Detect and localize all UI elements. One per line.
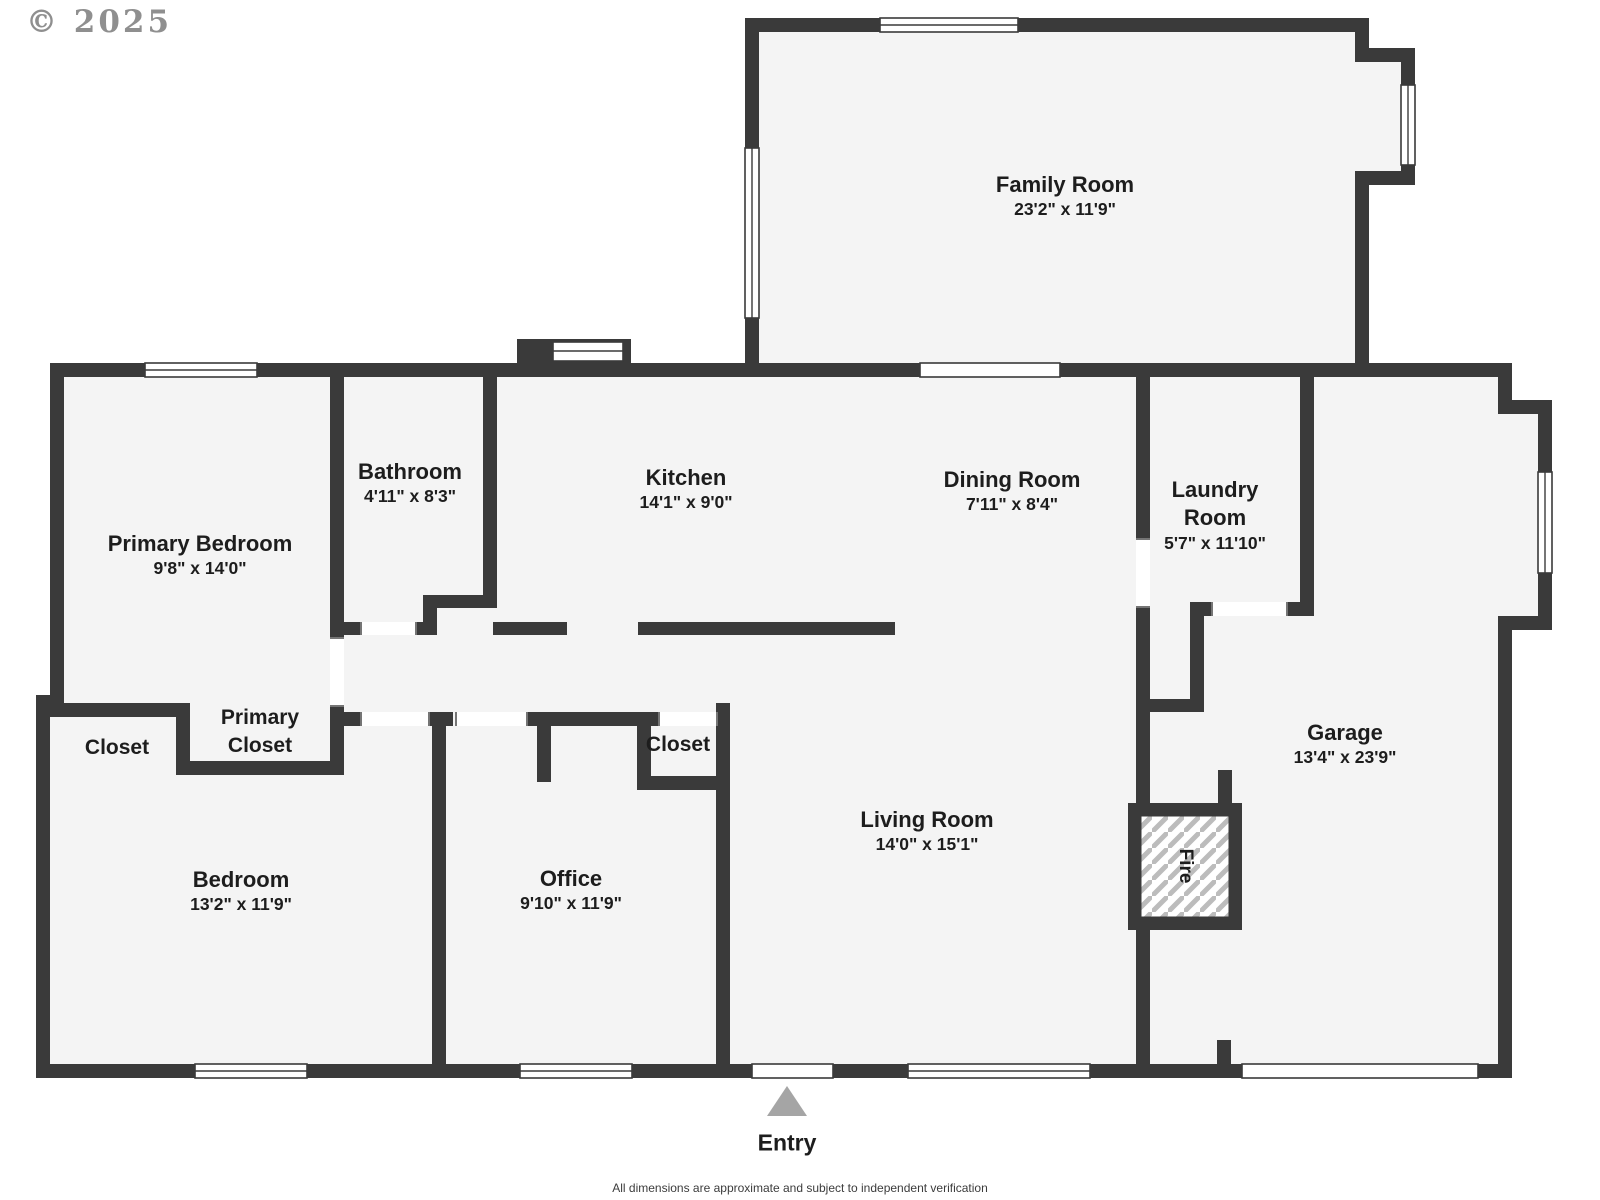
- room-label-family-room: Family Room 23'2" x 11'9": [996, 172, 1134, 220]
- entry-opening: [752, 1064, 833, 1078]
- room-label-laundry-room: Laundry Room 5'7" x 11'10": [1140, 476, 1290, 554]
- floor-plan-page: Family Room 23'2" x 11'9" Primary Bedroo…: [0, 0, 1600, 1200]
- room-label-bedroom: Bedroom 13'2" x 11'9": [190, 867, 292, 915]
- room-label-office: Office 9'10" x 11'9": [520, 866, 622, 914]
- floor-plan-drawing: [0, 0, 1600, 1200]
- garage-door: [1242, 1064, 1478, 1078]
- room-label-primary-bedroom: Primary Bedroom 9'8" x 14'0": [108, 531, 293, 579]
- copyright-watermark: © 2025: [26, 4, 172, 40]
- room-label-living-room: Living Room 14'0" x 15'1": [860, 807, 993, 855]
- room-label-dining-room: Dining Room 7'11" x 8'4": [944, 467, 1081, 515]
- disclaimer-text: All dimensions are approximate and subje…: [612, 1181, 988, 1195]
- room-label-garage: Garage 13'4" x 23'9": [1294, 720, 1397, 768]
- room-label-kitchen: Kitchen 14'1" x 9'0": [639, 465, 732, 513]
- fireplace-label: Fire: [1174, 849, 1196, 884]
- room-label-bathroom: Bathroom 4'11" x 8'3": [358, 459, 462, 507]
- room-label-primary-closet: Primary Closet: [190, 704, 330, 760]
- room-label-closet-small: Closet: [646, 732, 710, 758]
- entry-label: Entry: [758, 1130, 817, 1157]
- room-label-closet: Closet: [85, 735, 149, 761]
- entry-arrow-icon: [767, 1086, 807, 1116]
